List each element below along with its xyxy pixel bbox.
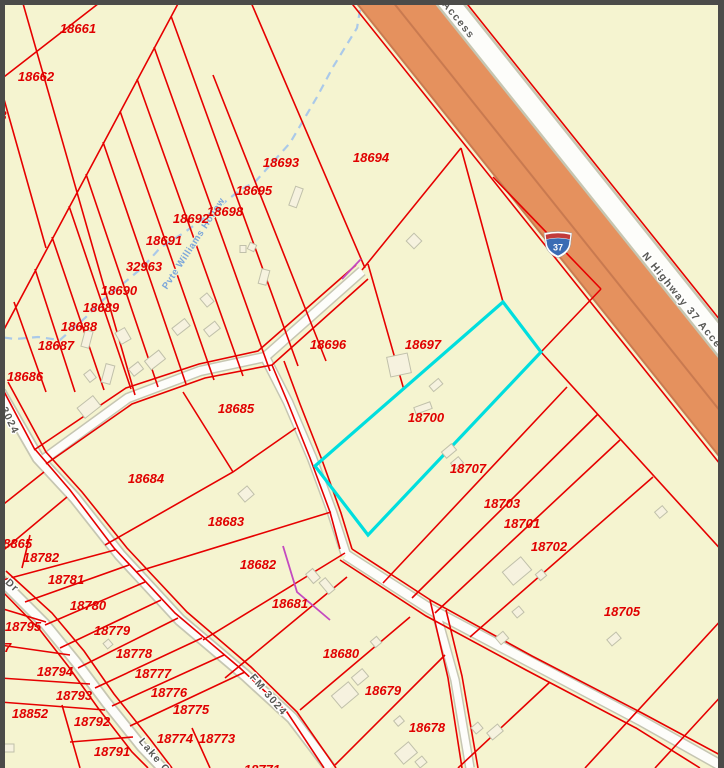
parcel-label-18686[interactable]: 18686 (7, 369, 44, 384)
parcel-label-18688[interactable]: 18688 (61, 319, 98, 334)
parcel-label-18685[interactable]: 18685 (218, 401, 255, 416)
svg-text:37: 37 (553, 243, 563, 253)
parcel-label-18680[interactable]: 18680 (323, 646, 360, 661)
parcel-label-18662[interactable]: 18662 (18, 69, 55, 84)
parcel-label-18696[interactable]: 18696 (310, 337, 347, 352)
parcel-label-18792[interactable]: 18792 (74, 714, 111, 729)
parcel-label-18689[interactable]: 18689 (83, 300, 120, 315)
parcel-label-18684[interactable]: 18684 (128, 471, 165, 486)
parcel-label-18707[interactable]: 18707 (450, 461, 487, 476)
parcel-label-18773[interactable]: 18773 (199, 731, 236, 746)
parcel-label-18695[interactable]: 18695 (236, 183, 273, 198)
parcel-label-18693[interactable]: 18693 (263, 155, 300, 170)
parcel-label-18698[interactable]: 18698 (207, 204, 244, 219)
parcel-label-18687[interactable]: 18687 (38, 338, 75, 353)
parcel-label-32963[interactable]: 32963 (126, 259, 163, 274)
frame-border-right (718, 0, 724, 768)
parcel-label-18795[interactable]: 18795 (5, 619, 42, 634)
parcel-map-canvas[interactable]: 37 3024FM 3024DrLake CAccessN Highway 37… (0, 0, 724, 768)
parcel-label-18774[interactable]: 18774 (157, 731, 194, 746)
map-viewport[interactable]: 37 3024FM 3024DrLake CAccessN Highway 37… (0, 0, 724, 768)
parcel-label-18678[interactable]: 18678 (409, 720, 446, 735)
parcel-label-18771[interactable]: 18771 (244, 762, 280, 768)
parcel-label-18681[interactable]: 18681 (272, 596, 308, 611)
parcel-label-18775[interactable]: 18775 (173, 702, 210, 717)
parcel-label-18703[interactable]: 18703 (484, 496, 521, 511)
parcel-label-18794[interactable]: 18794 (37, 664, 74, 679)
frame-border-top (0, 0, 724, 5)
parcel-label-18705[interactable]: 18705 (604, 604, 641, 619)
parcel-label-18700[interactable]: 18700 (408, 410, 445, 425)
parcel-label-18778[interactable]: 18778 (116, 646, 153, 661)
parcel-label-18691[interactable]: 18691 (146, 233, 182, 248)
parcel-label-18702[interactable]: 18702 (531, 539, 568, 554)
building-footprint (240, 246, 246, 253)
parcel-label-18776[interactable]: 18776 (151, 685, 188, 700)
parcel-label-18793[interactable]: 18793 (56, 688, 93, 703)
parcel-label-18692[interactable]: 18692 (173, 211, 210, 226)
frame-border-left (0, 0, 5, 768)
parcel-label-18779[interactable]: 18779 (94, 623, 131, 638)
building-footprint (387, 353, 412, 377)
parcel-label-18679[interactable]: 18679 (365, 683, 402, 698)
parcel-label-18852[interactable]: 18852 (12, 706, 49, 721)
parcel-label-18682[interactable]: 18682 (240, 557, 277, 572)
parcel-label-18701[interactable]: 18701 (504, 516, 540, 531)
parcel-label-18661[interactable]: 18661 (60, 21, 96, 36)
parcel-label-18690[interactable]: 18690 (101, 283, 138, 298)
parcel-label-18683[interactable]: 18683 (208, 514, 245, 529)
parcel-label-18782[interactable]: 18782 (23, 550, 60, 565)
parcel-label-18781[interactable]: 18781 (48, 572, 84, 587)
parcel-label-18791[interactable]: 18791 (94, 744, 130, 759)
parcel-label-18780[interactable]: 18780 (70, 598, 107, 613)
parcel-label-18777[interactable]: 18777 (135, 666, 172, 681)
parcel-label-18694[interactable]: 18694 (353, 150, 390, 165)
parcel-label-18697[interactable]: 18697 (405, 337, 442, 352)
